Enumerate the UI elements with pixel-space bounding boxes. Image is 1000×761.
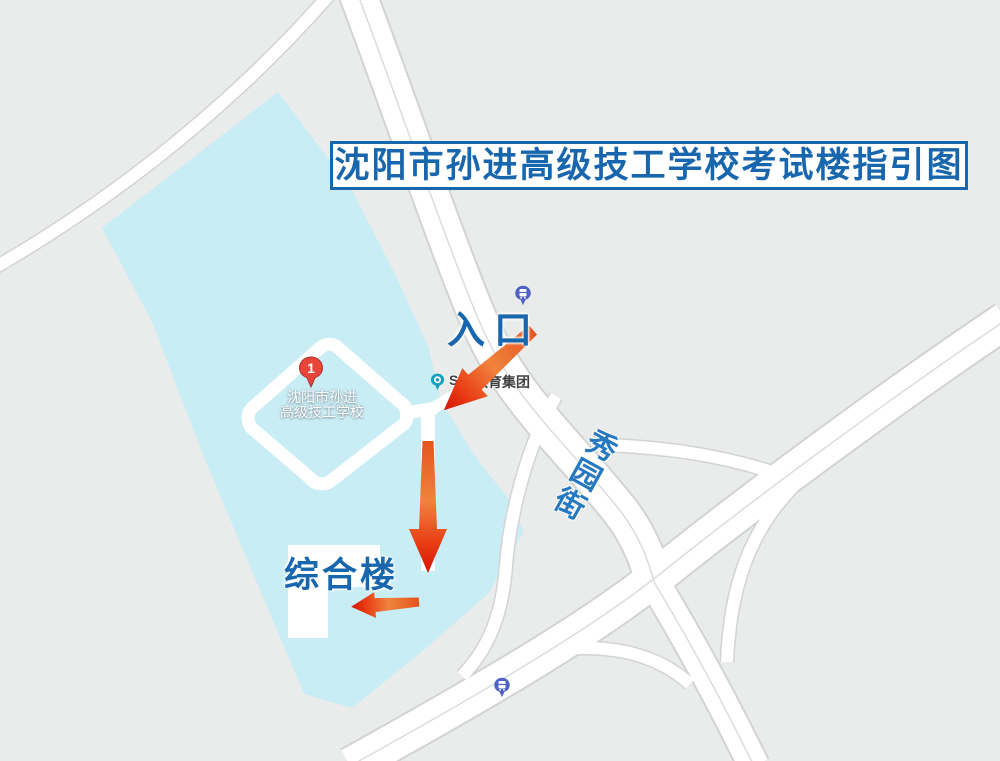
down-arrow (409, 441, 447, 573)
map-title: 沈阳市孙进高级技工学校考试楼指引图 (330, 141, 968, 190)
entrance-label: 入口 (447, 299, 541, 354)
main-building-label: 综合楼 (284, 547, 398, 598)
map-guide-image: 秀 园 街 沈阳市孙进 高级技工学校 SU 教育集团 1 (0, 0, 1000, 761)
direction-arrows (0, 0, 1000, 761)
